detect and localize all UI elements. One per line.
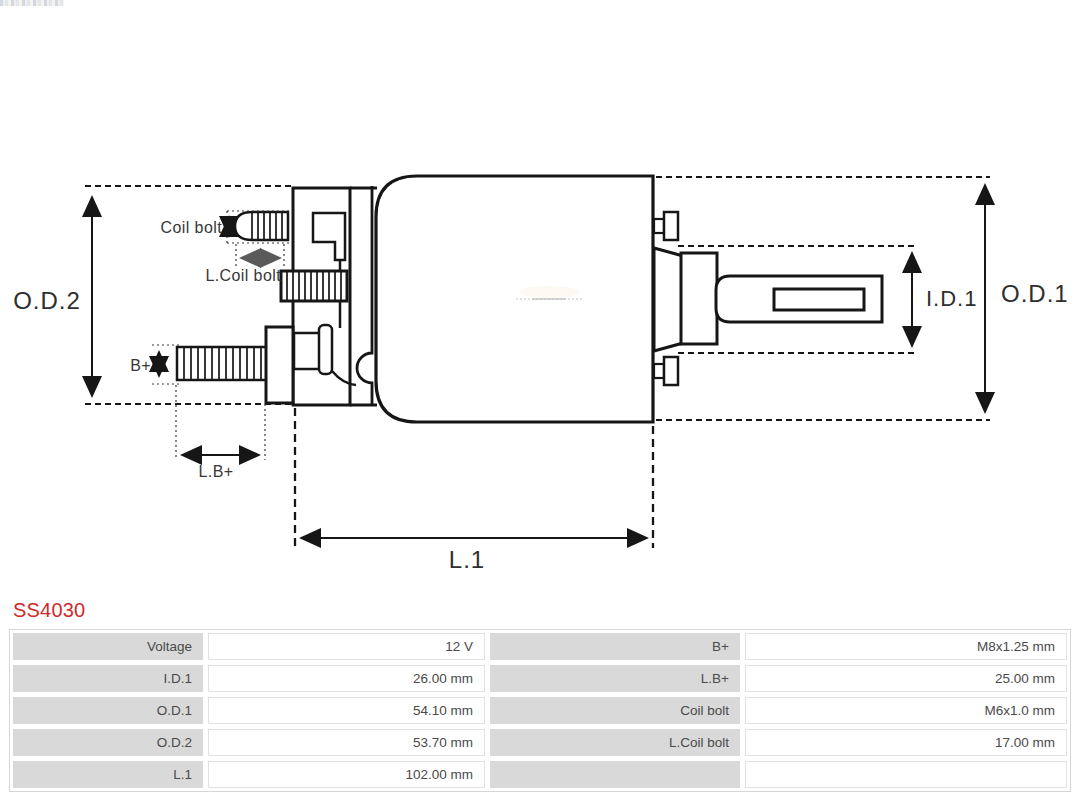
spec-value [745, 761, 1067, 788]
spec-label: B+ [490, 633, 740, 660]
spec-value: 53.70 mm [208, 729, 485, 756]
spec-value: M8x1.25 mm [745, 633, 1067, 660]
dim-label-id1: I.D.1 [926, 286, 977, 311]
solenoid-diagram: O.D.2 [0, 0, 1080, 595]
b-plus-washer [294, 333, 321, 369]
spec-value: 25.00 mm [745, 665, 1067, 692]
l1-dimension: L.1 [295, 408, 653, 573]
spec-value: 102.00 mm [208, 761, 485, 788]
dim-label-l-coil-bolt: L.Coil bolt [205, 267, 281, 284]
part-number-title: SS4030 [13, 599, 85, 622]
solenoid-body [376, 176, 653, 422]
b-plus-nut [266, 327, 293, 403]
spec-value: 12 V [208, 633, 485, 660]
table-row: Voltage 12 V B+ M8x1.25 mm [13, 633, 1067, 660]
spec-value: M6x1.0 mm [745, 697, 1067, 724]
dim-label-od2: O.D.2 [13, 287, 81, 314]
table-row: I.D.1 26.00 mm L.B+ 25.00 mm [13, 665, 1067, 692]
dim-label-l1: L.1 [449, 546, 485, 573]
threaded-bushing [281, 271, 347, 301]
spec-value: 17.00 mm [745, 729, 1067, 756]
table-row: O.D.1 54.10 mm Coil bolt M6x1.0 mm [13, 697, 1067, 724]
spec-label: Voltage [13, 633, 203, 660]
spec-label: O.D.1 [13, 697, 203, 724]
coil-bolt: Coil bolt L.Coil bolt [161, 211, 290, 284]
spec-label: L.1 [13, 761, 203, 788]
spec-label: I.D.1 [13, 665, 203, 692]
table-row: L.1 102.00 mm [13, 761, 1067, 788]
b-plus-flange [319, 325, 332, 374]
dim-label-coil-bolt: Coil bolt [161, 219, 223, 236]
mounting-stud-top [654, 212, 678, 240]
spec-value: 54.10 mm [208, 697, 485, 724]
mounting-stud-bottom [654, 357, 678, 385]
spec-label [490, 761, 740, 788]
spec-label: O.D.2 [13, 729, 203, 756]
spec-label: L.Coil bolt [490, 729, 740, 756]
product-drawing-page: O.D.2 [0, 0, 1080, 799]
dim-label-od1: O.D.1 [1001, 280, 1069, 307]
spec-value: 26.00 mm [208, 665, 485, 692]
plunger [654, 248, 882, 351]
dim-label-b-plus: B+ [130, 357, 151, 374]
spec-table: Voltage 12 V B+ M8x1.25 mm I.D.1 26.00 m… [9, 629, 1071, 792]
spec-label: Coil bolt [490, 697, 740, 724]
table-row: O.D.2 53.70 mm L.Coil bolt 17.00 mm [13, 729, 1067, 756]
spec-label: L.B+ [490, 665, 740, 692]
dim-label-lb-plus: L.B+ [199, 463, 234, 480]
plunger-slot [774, 289, 864, 310]
